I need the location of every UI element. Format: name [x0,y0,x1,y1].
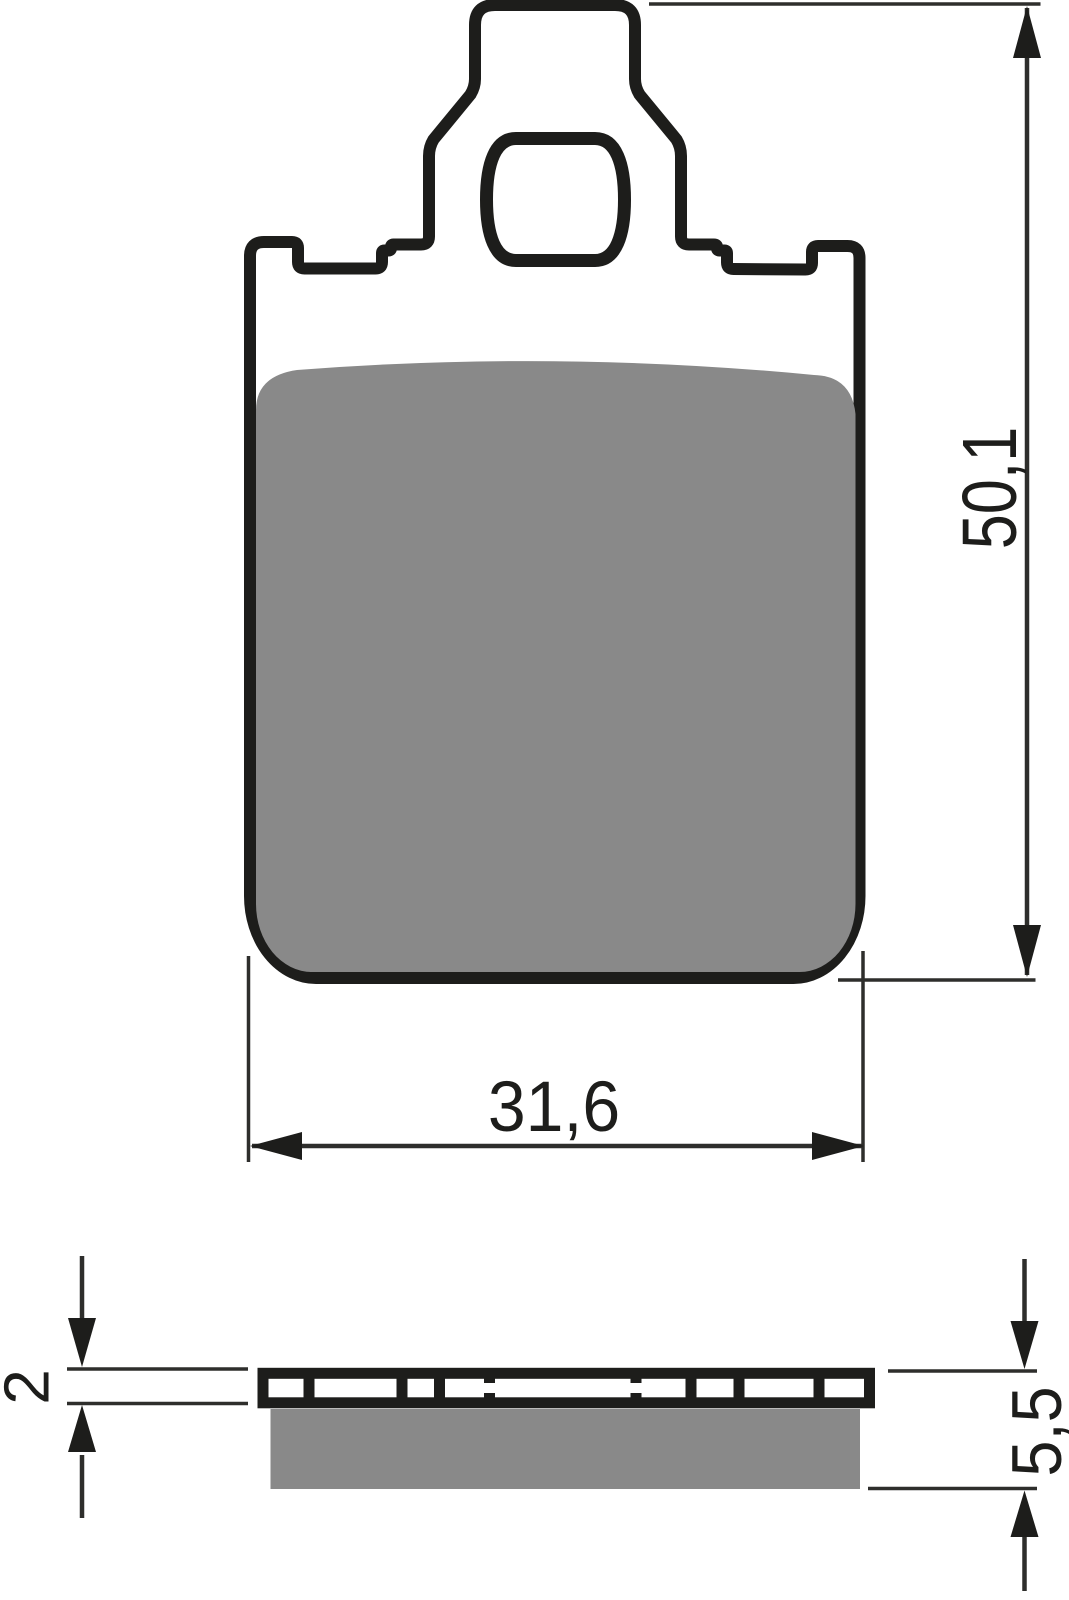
svg-text:50,1: 50,1 [946,427,1032,550]
svg-text:5,5: 5,5 [999,1386,1069,1476]
svg-text:31,6: 31,6 [488,1066,620,1146]
svg-text:2: 2 [0,1369,63,1405]
